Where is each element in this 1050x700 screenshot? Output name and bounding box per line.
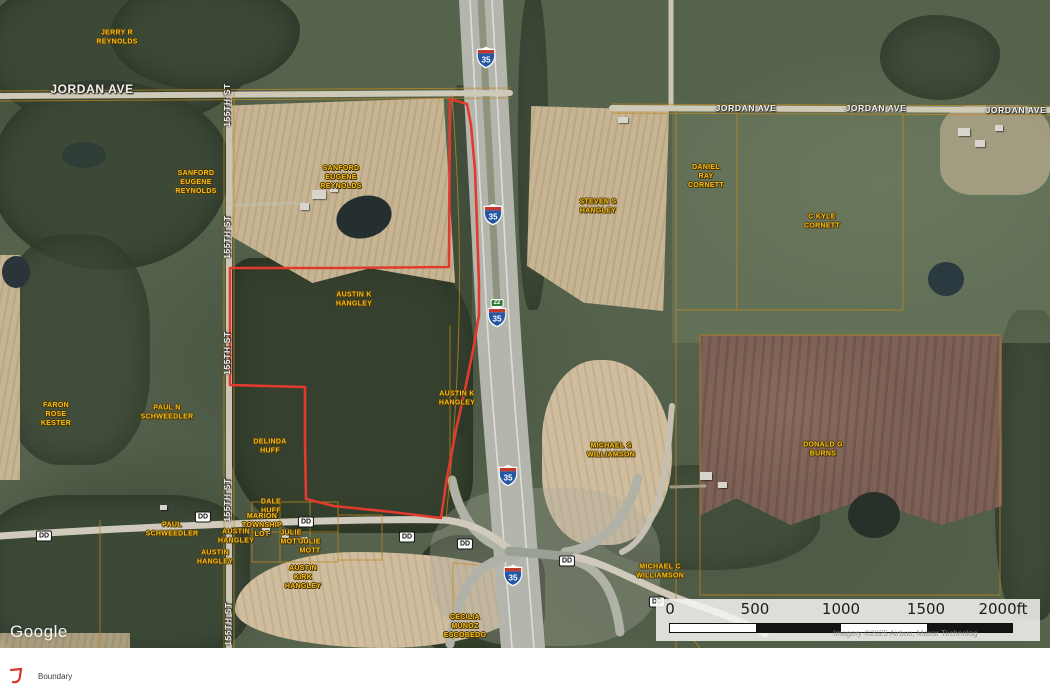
- road-label-jordan-ave-east-2: JORDAN AVE: [846, 103, 907, 113]
- interstate-35-shield-4: 35: [498, 464, 518, 492]
- parcel-label-michael-s-williamson: MICHAEL S WILLIAMSON: [587, 442, 635, 460]
- property-boundary: [0, 0, 1050, 648]
- parcel-label-sanford-eugene-reynolds-2: SANFORD EUGENE REYNOLDS: [320, 165, 361, 191]
- interstate-35-shield-2: 35: [483, 203, 503, 231]
- road-label-jordan-ave-east-3: JORDAN AVE: [986, 105, 1047, 115]
- parcel-label-michael-c-williamson: MICHAEL C WILLIAMSON: [636, 563, 684, 581]
- road-label-155th-st-2: 155TH ST: [222, 215, 232, 259]
- parcel-label-austin-k-hangley-1: AUSTIN K HANGLEY: [336, 291, 372, 309]
- svg-text:35: 35: [492, 315, 502, 324]
- parcel-label-paul-n-schweedler: PAUL N SCHWEEDLER: [141, 404, 194, 422]
- scale-label-0: 0: [665, 600, 675, 618]
- parcel-label-julie-mott-2: JULIE MOTT: [299, 538, 320, 556]
- parcel-label-austin-kirk-hangley: AUSTIN KIRK HANGLEY: [285, 565, 321, 591]
- parcel-label-faron-rose-kester: FARON ROSE KESTER: [41, 402, 71, 428]
- google-watermark: Google: [10, 622, 68, 642]
- parcel-label-c-kyle-cornett: C KYLE CORNETT: [804, 213, 840, 231]
- scale-label-2000ft: 2000ft: [978, 600, 1027, 618]
- scale-label-1000: 1000: [822, 600, 860, 618]
- parcel-label-delinda-huff: DELINDA HUFF: [253, 438, 286, 456]
- parcel-label-paul-schweedler: PAUL SCHWEEDLER: [146, 521, 199, 539]
- scanned-map-page: JERRY R REYNOLDSSANFORD EUGENE REYNOLDSS…: [0, 0, 1050, 700]
- road-label-155th-st-3: 155TH ST: [222, 331, 232, 375]
- scale-segment: [670, 624, 756, 632]
- scale-segment: [756, 624, 842, 632]
- route-dd-badge-1: DD: [36, 531, 52, 542]
- interstate-35-shield-1: 35: [476, 46, 496, 74]
- legend: Boundary: [8, 664, 72, 688]
- parcel-label-austin-hangley-2: AUSTIN HANGLEY: [197, 549, 233, 567]
- imagery-attribution: Imagery ©2025 Airbus, Maxar Technolog: [833, 629, 978, 638]
- interstate-35-shield-3: 35: [487, 305, 507, 333]
- road-label-155th-st-1: 155TH ST: [222, 83, 232, 127]
- interstate-35-shield-5: 35: [503, 564, 523, 592]
- parcel-label-sanford-eugene-reynolds-1: SANFORD EUGENE REYNOLDS: [175, 170, 216, 196]
- route-dd-badge-5: DD: [457, 539, 473, 550]
- svg-text:35: 35: [503, 474, 513, 483]
- road-label-jordan-ave-west: JORDAN AVE: [50, 82, 133, 96]
- road-label-155th-st-4: 155TH ST: [222, 478, 232, 522]
- legend-label: Boundary: [38, 672, 72, 681]
- boundary-legend-icon: [8, 667, 24, 685]
- route-dd-badge-4: DD: [399, 532, 415, 543]
- parcel-label-austin-hangley-1: AUSTIN HANGLEY: [218, 528, 254, 546]
- scale-label-1500: 1500: [907, 600, 945, 618]
- parcel-label-jerry-r-reynolds: JERRY R REYNOLDS: [96, 29, 137, 47]
- svg-text:35: 35: [481, 56, 491, 65]
- parcel-label-cecilia-munoz-escobedo: CECILIA MUNOZ ESCOBEDO: [444, 614, 486, 640]
- road-label-155th-st-5: 155TH ST: [223, 602, 233, 646]
- svg-text:35: 35: [508, 574, 518, 583]
- exit-marker: 22: [491, 299, 504, 307]
- route-dd-badge-3: DD: [298, 517, 314, 528]
- parcel-label-steven-s-hangley: STEVEN S HANGLEY: [579, 198, 616, 216]
- road-label-jordan-ave-east-1: JORDAN AVE: [716, 103, 777, 113]
- map-canvas[interactable]: JERRY R REYNOLDSSANFORD EUGENE REYNOLDSS…: [0, 0, 1050, 648]
- svg-text:35: 35: [488, 213, 498, 222]
- route-dd-badge-6: DD: [559, 556, 575, 567]
- scale-label-500: 500: [741, 600, 770, 618]
- parcel-label-daniel-ray-cornett: DANIEL RAY CORNETT: [688, 164, 724, 190]
- parcel-label-donald-g-burns: DONALD G BURNS: [803, 441, 843, 459]
- route-dd-badge-2: DD: [195, 512, 211, 523]
- parcel-label-austin-k-hangley-2: AUSTIN K HANGLEY: [439, 390, 475, 408]
